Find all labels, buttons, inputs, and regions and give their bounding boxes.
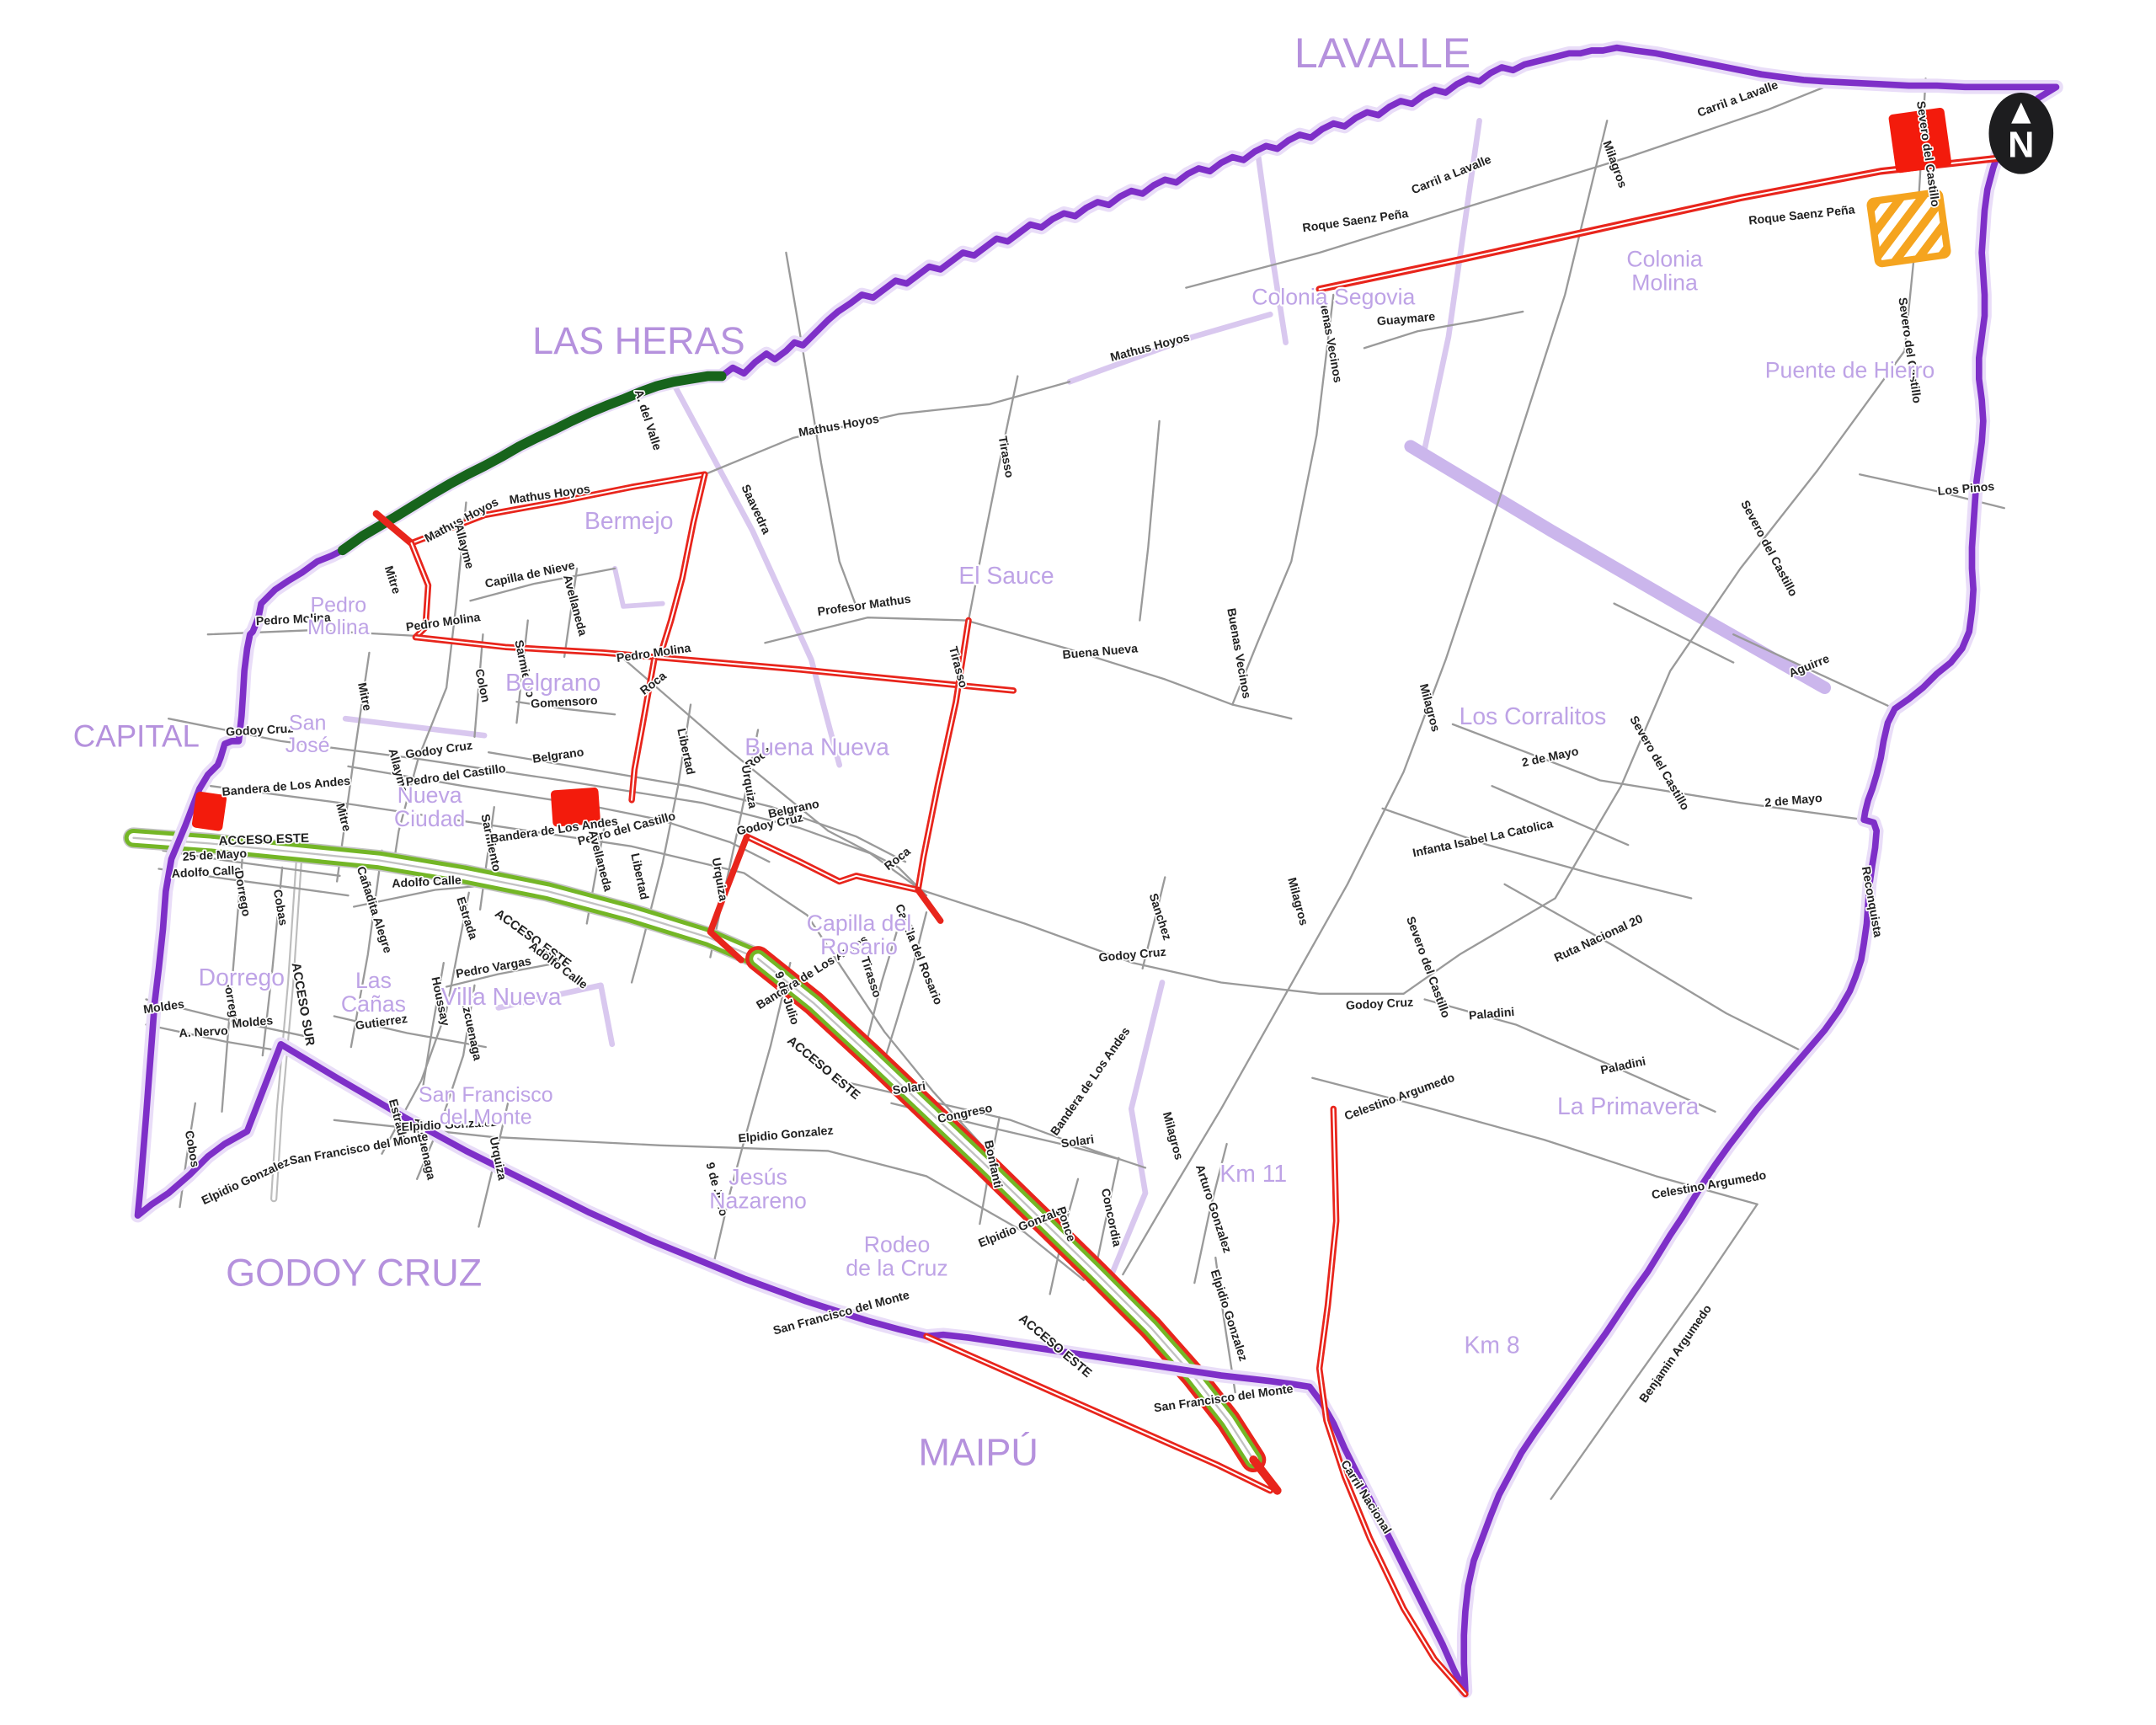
street-label: Godoy Cruz [1098, 946, 1166, 965]
street-label: Avellaneda [560, 574, 590, 638]
district-label: JesúsNazareno [709, 1164, 807, 1213]
street-label: Severo del Castillo [1626, 713, 1691, 813]
road-mathus-hoyos [705, 382, 1070, 474]
road-el-sauce-v [1139, 421, 1159, 621]
district-label: Los Corralitos [1460, 703, 1607, 730]
street-label: 2 de Mayo [1764, 792, 1823, 810]
neighbor-label: CAPITAL [73, 719, 200, 754]
district-label: El Sauce [958, 563, 1054, 590]
district-label: Dorrego [199, 964, 285, 991]
district-label: Buena Nueva [744, 734, 889, 761]
street-label: Godoy Cruz [226, 722, 294, 739]
street-label: Roque Saenz Peña [1302, 207, 1410, 235]
district-label: Colonia Segovia [1251, 285, 1415, 310]
map-canvas: Carril a LavalleCarril a LavalleRoque Sa… [0, 0, 2156, 1725]
street-label: San Francisco del Monte [289, 1130, 430, 1168]
road-ruta-nacional-20 [1505, 884, 1800, 1050]
district-label: SanJosé [286, 712, 330, 757]
district-label: ColoniaMolina [1626, 247, 1703, 296]
road-aguirre [1733, 634, 1897, 710]
street-label: A. Nervo [179, 1024, 228, 1040]
street-label: Milagros [1284, 876, 1310, 927]
street-label: Cobos [182, 1130, 201, 1168]
road-carril-a-lavalle [1186, 78, 1845, 287]
street-label: Paladini [1468, 1006, 1514, 1023]
street-label: Infanta Isabel La Catolica [1412, 817, 1555, 860]
map-labels: Carril a LavalleCarril a LavalleRoque Sa… [73, 29, 1995, 1536]
district-label: Puente de Hierro [1765, 357, 1935, 382]
street-label: Benjamin Argumedo [1637, 1302, 1715, 1405]
road-buenas-vecinos [1232, 295, 1333, 705]
street-label: Mathus Hoyos [1109, 330, 1192, 365]
district-label: NuevaCiudad [394, 782, 465, 831]
street-label: Dorrego [232, 869, 253, 917]
road-severo-del-castillo-wide [1411, 446, 1825, 688]
north-letter: N [2008, 126, 2034, 166]
neighbor-label: GODOY CRUZ [226, 1251, 482, 1294]
road-corralitos-1 [1614, 604, 1734, 663]
street-label: 2 de Mayo [1521, 745, 1581, 770]
district-label: PedroMolina [307, 594, 370, 639]
district-label: Bermejo [584, 508, 673, 535]
neighbor-label: MAIPÚ [918, 1431, 1038, 1474]
street-label: Los Pinos [1937, 480, 1995, 499]
road-carril-nacional [1320, 1108, 1465, 1694]
district-label: Belgrano [505, 670, 600, 697]
street-label: Mitre [382, 564, 403, 595]
highlighted-red-roads [376, 154, 2032, 1694]
street-label: A. del Valle [632, 388, 664, 452]
street-label: Allayme [451, 523, 477, 571]
street-label: Carril a Lavalle [1410, 153, 1494, 198]
map-stage: Carril a LavalleCarril a LavalleRoque Sa… [0, 0, 2156, 1725]
street-label: Guaymare [1376, 310, 1436, 328]
street-label: Severo del Castillo [1737, 499, 1800, 600]
road-carril-nacional-core [1320, 1108, 1465, 1694]
street-label: Carril a Lavalle [1695, 78, 1780, 120]
district-label: LasCañas [341, 968, 406, 1017]
street-label: Bandera de Los Andes [1049, 1025, 1134, 1139]
street-label: Cañadita Alegre [354, 865, 394, 955]
road-9-de-julio [712, 963, 790, 1272]
street-label: Buenas Vecinos [1224, 607, 1253, 700]
street-label: Godoy Cruz [1346, 996, 1414, 1012]
street-label: Cobas [270, 889, 290, 927]
neighbor-label: LAVALLE [1294, 29, 1470, 77]
district-label: La Primavera [1557, 1093, 1700, 1120]
street-label: Pedro Molina [405, 611, 481, 634]
district-label: Capilla delRosario [807, 911, 911, 959]
street-label: Libertad [627, 852, 650, 901]
street-label: Tirasso [857, 955, 883, 1000]
street-label: Elpidio Gonzalez [738, 1124, 834, 1146]
neighbor-label: LAS HERAS [532, 319, 745, 362]
street-label: Godoy Cruz [404, 739, 473, 761]
street-label: Milagros [1160, 1111, 1186, 1162]
district-label: Rodeode la Cruz [846, 1231, 948, 1280]
street-label: Colon [472, 668, 492, 704]
street-label: Paladini [1599, 1055, 1646, 1077]
district-label: Km 11 [1219, 1161, 1287, 1188]
road-belgrano-st [488, 752, 905, 862]
street-label: Severo del Castillo [1895, 296, 1924, 404]
street-label: Gomensoro [531, 694, 599, 711]
street-label: Profesor Mathus [817, 593, 912, 619]
street-label: Mitre [333, 802, 353, 833]
street-label: Roque Saenz Peña [1748, 203, 1856, 227]
street-label: Mathus Hoyos [798, 413, 880, 441]
street-label: Estrada [453, 895, 479, 941]
road-capilla-de-nieve-jog [615, 569, 663, 606]
district-label: Villa Nueva [441, 984, 562, 1011]
street-label: Mitre [355, 681, 374, 713]
street-label: Pedro Vargas [455, 954, 532, 980]
street-label: Roca [882, 845, 913, 873]
north-indicator: N [1988, 93, 2053, 174]
street-label: Libertad [674, 727, 696, 776]
road-godoy-cruz-border [345, 718, 484, 735]
highway-diag-red [758, 959, 1253, 1460]
district-label: Km 8 [1465, 1332, 1520, 1359]
street-label: Celestino Argumedo [1342, 1071, 1456, 1123]
